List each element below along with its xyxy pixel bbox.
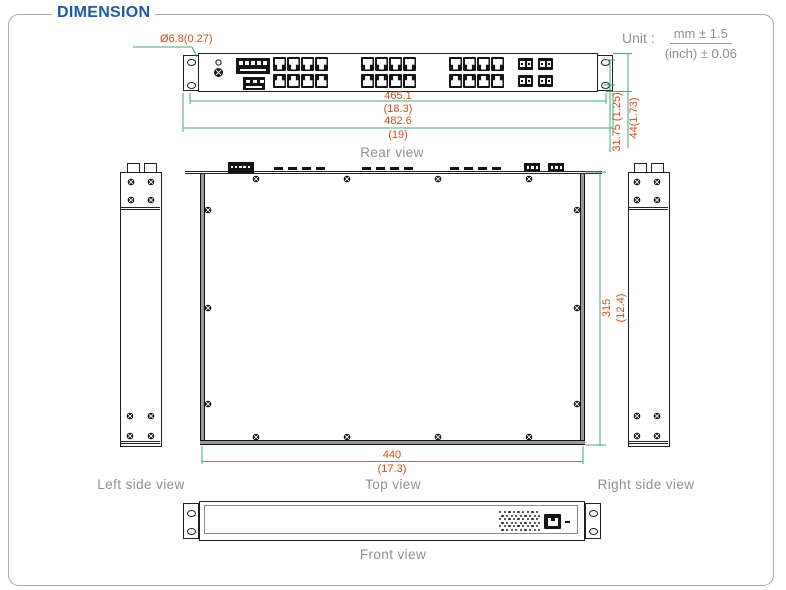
dim-body-width-mm: 440 — [383, 449, 401, 461]
port-top-edge — [478, 167, 487, 170]
fiber-lens — [520, 78, 525, 84]
dim-rear-outer-width-inch: (19) — [388, 129, 408, 141]
sfp-dot — [551, 166, 554, 169]
front-right-mounting-ear — [585, 503, 601, 539]
port-top-edge — [404, 167, 413, 170]
fiber-core — [548, 80, 550, 82]
fiber-lens — [527, 61, 532, 67]
rj45-port — [375, 57, 388, 71]
terminal-pin — [245, 61, 249, 65]
rj45-port — [361, 57, 374, 71]
fiber-lens — [540, 78, 545, 84]
rj45-jack-opening — [289, 76, 299, 87]
fiber-core — [528, 63, 530, 65]
rear-view-label: Rear view — [360, 145, 424, 160]
terminal-pin — [260, 80, 264, 84]
dim-mounting-hole-diameter: Ø6.8(0.27) — [160, 33, 213, 45]
port-top-edge — [274, 167, 283, 170]
terminal-pin — [239, 166, 242, 169]
rj45-jack-opening — [479, 59, 489, 70]
rj45-port — [389, 57, 402, 71]
terminal-slot — [240, 69, 266, 72]
sfp-top-edge — [548, 163, 564, 172]
vent-hole — [501, 515, 503, 517]
terminal-pin — [235, 166, 238, 169]
terminal-pin — [246, 80, 250, 84]
front-panel-body — [199, 501, 585, 541]
dim-rear-inner-width-mm: 465.1 — [384, 90, 412, 102]
vent-hole — [520, 515, 522, 517]
dim-rear-inner-width-inch: (18.3) — [384, 103, 413, 115]
rj45-port — [403, 74, 416, 88]
fiber-core — [528, 80, 530, 82]
fiber-core — [541, 80, 543, 82]
rj45-jack-opening — [363, 59, 373, 70]
rj45-jack-opening — [405, 76, 415, 87]
rj45-port — [315, 74, 328, 88]
terminal-slot — [246, 86, 262, 89]
vent-hole — [534, 522, 536, 524]
fiber-core — [521, 80, 523, 82]
sfp-dot — [555, 166, 558, 169]
relay-terminal-block — [243, 77, 265, 90]
rj45-jack-opening — [303, 76, 313, 87]
mounting-hole — [187, 510, 196, 517]
mounting-hole — [187, 59, 196, 66]
terminal-pin — [253, 80, 257, 84]
fiber-lens — [520, 61, 525, 67]
rj45-port — [477, 74, 490, 88]
mounting-hole — [187, 528, 196, 535]
reset-pinhole — [565, 521, 570, 523]
dim-height: 44(1.73) — [628, 98, 640, 139]
fiber-core — [541, 63, 543, 65]
dim-rear-outer-width-mm: 482.6 — [384, 115, 412, 127]
vent-hole — [511, 515, 513, 517]
fiber-core — [521, 63, 523, 65]
unit-tolerance-inch: (inch) ± 0.06 — [661, 44, 741, 61]
power-terminal-block — [236, 58, 270, 74]
rj45-jack-opening — [303, 59, 313, 70]
fiber-lens — [527, 78, 532, 84]
vent-hole — [501, 522, 503, 524]
rear-left-mounting-ear — [183, 55, 199, 91]
rj45-port — [463, 74, 476, 88]
fiber-lens — [547, 78, 552, 84]
terminal-pin — [239, 61, 243, 65]
port-top-edge — [464, 167, 473, 170]
left-view-divider — [120, 207, 160, 210]
rj45-jack-opening — [377, 59, 387, 70]
vent-hole — [524, 515, 526, 517]
rj45-jack-opening — [465, 76, 475, 87]
front-view-label: Front view — [360, 547, 426, 562]
rj45-port — [477, 57, 490, 71]
port-top-edge — [288, 167, 297, 170]
fiber-connector — [538, 58, 553, 70]
right-view-bottom-band — [628, 441, 668, 444]
rj45-port — [449, 57, 462, 71]
rj45-jack-opening — [391, 76, 401, 87]
rj45-jack-opening — [363, 76, 373, 87]
fiber-connector — [538, 75, 553, 87]
rj45-jack-opening — [493, 59, 503, 70]
unit-tolerance-mm: mm ± 1.5 — [670, 26, 732, 44]
section-title: DIMENSION — [52, 4, 155, 22]
mounting-hole — [589, 510, 598, 517]
rj45-jack-opening — [289, 59, 299, 70]
rj45-jack-opening — [275, 76, 285, 87]
rj45-port — [389, 74, 402, 88]
vent-hole — [520, 529, 522, 531]
rj45-jack-opening — [391, 59, 401, 70]
dim-depth-inch: (12.4) — [615, 294, 627, 323]
rj45-port — [491, 74, 504, 88]
mounting-hole — [589, 528, 598, 535]
fiber-lens — [540, 61, 545, 67]
sfp-dot — [560, 166, 563, 169]
rj45-port — [403, 57, 416, 71]
dim-ear-hole-pitch: 31.75 (1.25) — [611, 92, 623, 151]
top-view-left-wall — [200, 174, 205, 441]
dim-body-width-inch: (17.3) — [378, 463, 407, 475]
mounting-hole — [601, 82, 610, 89]
rj45-port — [287, 74, 300, 88]
mounting-hole — [601, 59, 610, 66]
vent-hole — [534, 515, 536, 517]
port-top-edge — [390, 167, 399, 170]
sfp-dot — [527, 166, 530, 169]
right-side-view-body — [628, 172, 670, 447]
fiber-lens — [547, 61, 552, 67]
vent-hole — [524, 522, 526, 524]
rj45-port — [301, 57, 314, 71]
rj45-jack-opening — [451, 59, 461, 70]
terminal-pin — [231, 166, 234, 169]
mounting-hole — [187, 82, 196, 89]
port-top-edge — [450, 167, 459, 170]
port-top-edge — [316, 167, 325, 170]
rj45-jack-opening — [405, 59, 415, 70]
right-view-divider — [628, 207, 668, 210]
rj45-port — [449, 74, 462, 88]
top-view-bottom-edge — [200, 440, 585, 445]
unit-note: Unit : mm ± 1.5 (inch) ± 0.06 — [622, 30, 741, 61]
rj45-port — [273, 57, 286, 71]
unit-label: Unit : — [622, 30, 655, 46]
rj45-port — [273, 74, 286, 88]
rj45-port — [463, 57, 476, 71]
rj45-jack-opening — [317, 59, 327, 70]
rj45-jack-opening — [377, 76, 387, 87]
unit-tolerance-fraction: mm ± 1.5 (inch) ± 0.06 — [661, 26, 741, 61]
fiber-core — [548, 63, 550, 65]
vent-hole — [534, 529, 536, 531]
vent-hole — [511, 529, 513, 531]
vent-hole — [520, 522, 522, 524]
left-view-bottom-band — [120, 441, 160, 444]
top-view-right-wall — [580, 174, 585, 441]
rj45-jack-opening — [451, 76, 461, 87]
terminal-pin — [251, 61, 255, 65]
rj45-jack-opening — [493, 76, 503, 87]
rj45-jack-opening — [479, 76, 489, 87]
rear-right-mounting-ear — [597, 55, 613, 91]
port-top-edge — [376, 167, 385, 170]
port-top-edge — [302, 167, 311, 170]
dimension-drawing: DIMENSION Unit : mm ± 1.5 (inch) ± 0.06 — [0, 0, 786, 590]
left-side-view-body — [120, 172, 162, 447]
left-side-view-label: Left side view — [97, 477, 184, 492]
port-top-edge — [492, 167, 501, 170]
sfp-dot — [531, 166, 534, 169]
top-view-label: Top view — [365, 477, 421, 492]
rj45-port — [301, 74, 314, 88]
console-port — [544, 514, 561, 529]
vent-hole — [524, 529, 526, 531]
fiber-connector — [518, 58, 533, 70]
rj45-port — [491, 57, 504, 71]
vent-hole — [501, 529, 503, 531]
dim-depth-mm: 315 — [601, 299, 613, 317]
rj45-port — [375, 74, 388, 88]
rj45-port — [315, 57, 328, 71]
sfp-top-edge — [524, 163, 540, 172]
fiber-connector — [518, 75, 533, 87]
top-view-terminal-block — [228, 162, 254, 173]
right-side-view-label: Right side view — [598, 477, 695, 492]
terminal-pin — [243, 166, 246, 169]
port-top-edge — [362, 167, 371, 170]
front-left-mounting-ear — [183, 503, 199, 539]
vent-hole — [511, 522, 513, 524]
terminal-pin — [263, 61, 267, 65]
rj45-port — [287, 57, 300, 71]
rj45-port — [361, 74, 374, 88]
terminal-pin — [257, 61, 261, 65]
rj45-jack-opening — [275, 59, 285, 70]
rj45-jack-opening — [465, 59, 475, 70]
terminal-pin — [248, 166, 251, 169]
rj45-jack-opening — [317, 76, 327, 87]
sfp-dot — [536, 166, 539, 169]
